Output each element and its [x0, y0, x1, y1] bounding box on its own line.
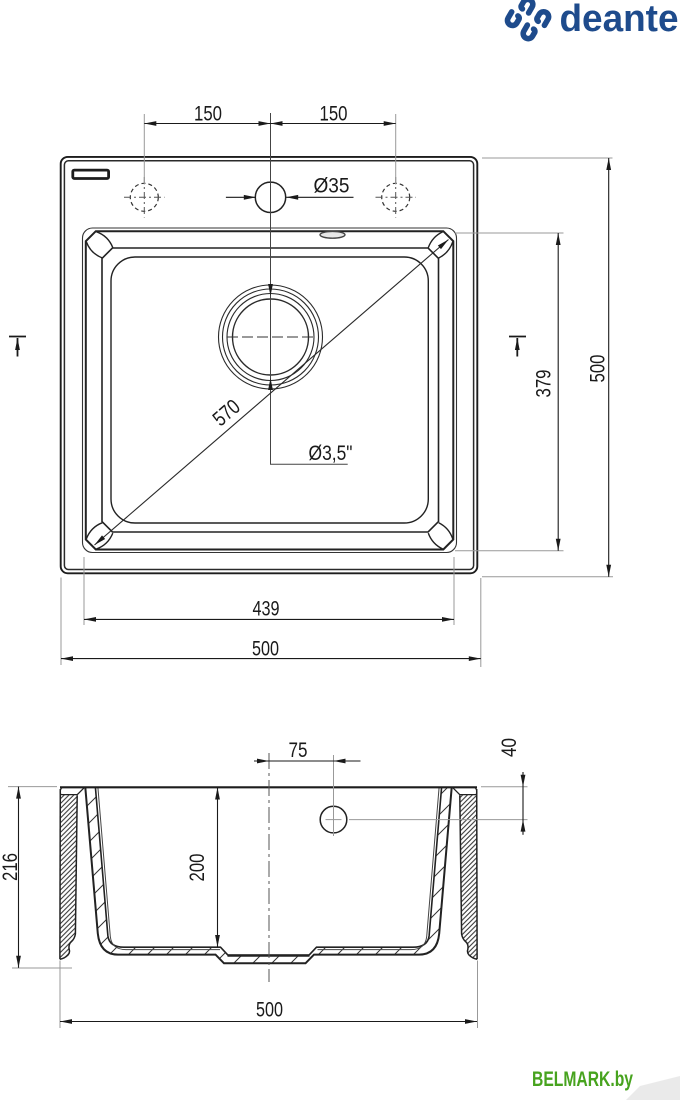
svg-text:deante: deante [560, 0, 679, 40]
svg-text:500: 500 [252, 638, 279, 661]
svg-text:200: 200 [186, 854, 209, 882]
svg-text:150: 150 [320, 103, 348, 126]
svg-text:439: 439 [253, 598, 280, 621]
svg-text:216: 216 [0, 853, 22, 881]
svg-text:500: 500 [256, 999, 283, 1022]
svg-text:40: 40 [498, 738, 521, 757]
svg-text:BELMARK.by: BELMARK.by [532, 1067, 633, 1091]
svg-text:75: 75 [289, 739, 308, 762]
svg-text:379: 379 [533, 370, 556, 398]
svg-text:Ø35: Ø35 [314, 175, 350, 198]
svg-text:150: 150 [194, 103, 222, 126]
svg-text:500: 500 [587, 355, 610, 383]
svg-text:Ø3,5": Ø3,5" [309, 442, 353, 465]
